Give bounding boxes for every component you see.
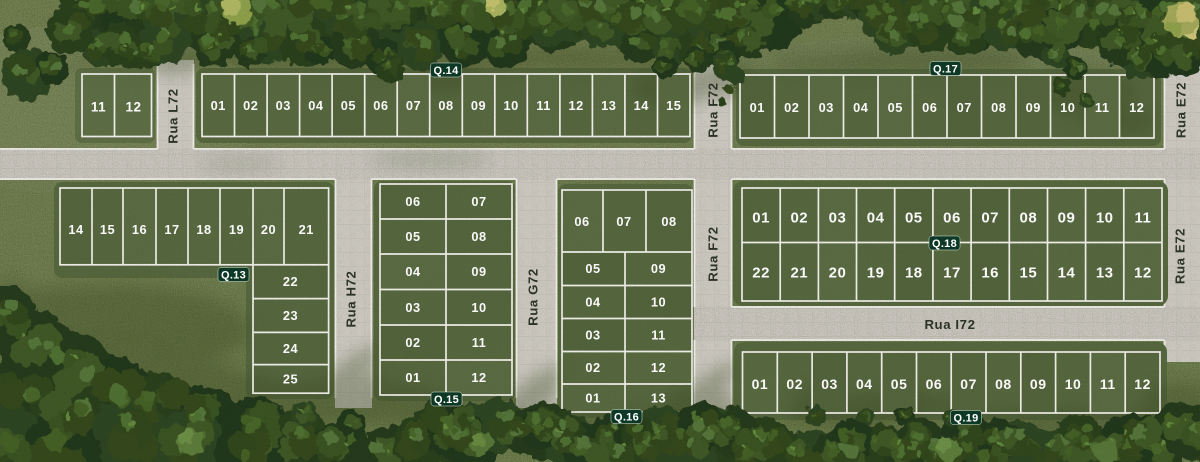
svg-text:Rua L72: Rua L72 — [166, 88, 181, 144]
svg-text:Q.17: Q.17 — [933, 64, 958, 76]
svg-text:Q.15: Q.15 — [434, 394, 459, 406]
svg-text:Q.16: Q.16 — [614, 412, 639, 424]
svg-text:Q.13: Q.13 — [221, 270, 246, 282]
svg-text:Rua H72: Rua H72 — [344, 271, 359, 328]
svg-text:Rua E72: Rua E72 — [1174, 82, 1189, 138]
svg-text:Rua I72: Rua I72 — [924, 317, 975, 332]
svg-text:Rua F72: Rua F72 — [706, 226, 721, 282]
svg-text:Rua E72: Rua E72 — [1173, 228, 1188, 284]
svg-text:Q.19: Q.19 — [953, 413, 978, 425]
svg-text:Rua F72: Rua F72 — [706, 82, 721, 138]
svg-text:Q.18: Q.18 — [932, 238, 957, 250]
svg-text:Rua G72: Rua G72 — [526, 268, 541, 326]
svg-text:Q.14: Q.14 — [433, 65, 459, 77]
